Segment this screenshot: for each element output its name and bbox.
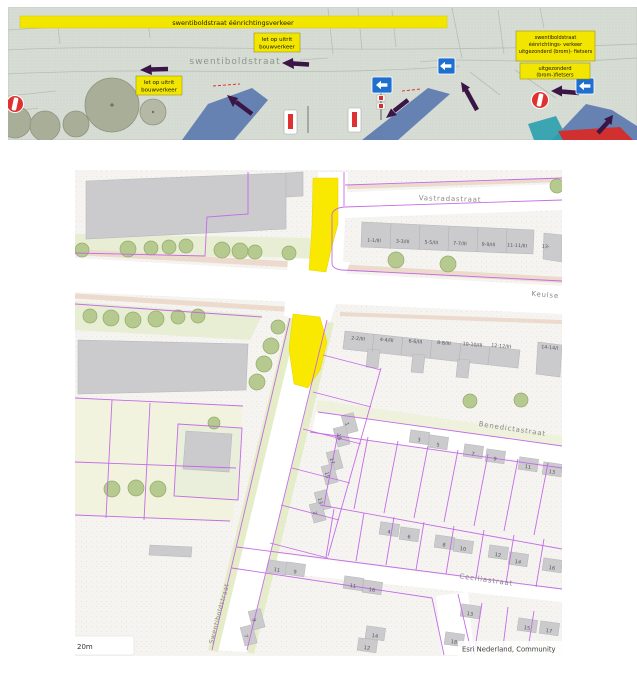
info-box-line: uitgezonderd (brom)- fietsers [519,49,593,55]
info-box-top: swentiboldstraat éénrichtings- verkeer u… [516,31,595,61]
cadastral-map: 1181715132357911134681012141611911169714… [70,170,564,656]
info-box-line: swentiboldstraat [535,35,577,41]
barrier-board-icon [284,110,297,134]
blue-left-arrow-sign-icon [438,58,455,74]
info-box-bottom: uitgezonderd (brom-)fietsers [520,63,590,79]
building-number-label: 2-2/III [351,335,365,342]
scale-bar: 20m [70,636,134,655]
house-number: 14 [514,559,521,566]
scale-label: 20m [77,643,93,651]
no-entry-sign-icon [532,92,549,109]
building-number-label: 4-4/III [380,337,394,344]
building-number-label: 8-8/III [437,340,451,347]
house-number: 18 [450,639,457,646]
one-way-bar-label: swentiboldstraat éénrichtingsverkeer [172,19,294,27]
warning-label-line2: bouwverkeer [141,88,177,94]
info-box-line: uitgezonderd [538,66,571,72]
house-number: 13 [548,469,555,476]
house-number: 16 [368,587,375,594]
building-number-label: 11-11/III [507,242,527,249]
warning-label-line1: let op uitrit [144,80,175,86]
house-number: 14 [371,633,378,640]
building-number-label: 9-9/III [481,242,495,249]
house-number: 12 [363,645,370,652]
building-number-label: 5-5/III [424,240,438,247]
traffic-plan-banner: swentiboldstraat éénrichtingsverkeer swe… [0,7,637,141]
page: swentiboldstraat éénrichtingsverkeer swe… [0,0,637,691]
info-box-line: (brom-)fietsers [536,73,574,79]
house-number: 15 [523,625,530,632]
house-number: 11 [349,583,356,590]
info-box-line: éénrichtings- verkeer [529,41,583,48]
map-attribution: Esri Nederland, Community [458,641,562,656]
barrier-board-icon [348,108,361,132]
house-number: 10 [459,546,466,553]
house-number: 11 [273,567,280,574]
building-number-label: 13- [542,244,550,250]
house-number: 16 [548,565,555,572]
no-entry-sign-icon [7,96,24,113]
building-number-label: 3-3/III [396,239,410,246]
blue-left-arrow-sign-icon [576,78,594,94]
house-number: 11 [524,464,531,471]
house-number: 17 [545,628,552,635]
warning-label: let op uitrit bouwverkeer [136,76,182,95]
house-number: 12 [494,552,501,559]
attribution-text: Esri Nederland, Community [462,646,556,654]
building-number-label: 1-1/III [367,238,381,245]
warning-label: let op uitrit bouwverkeer [254,33,300,52]
building-number-label: 6-6/III [408,338,422,345]
street-label-vastradastraat: Vastradastraat [419,194,482,204]
warning-label-line1: let op uitrit [262,37,293,43]
scene: swentiboldstraat éénrichtingsverkeer swe… [0,0,637,691]
building-number-label: 7-7/III [453,241,467,248]
plan-street-name: swentiboldstraat [189,57,280,67]
warning-label-line2: bouwverkeer [259,45,295,51]
house-number: 13 [466,611,473,618]
